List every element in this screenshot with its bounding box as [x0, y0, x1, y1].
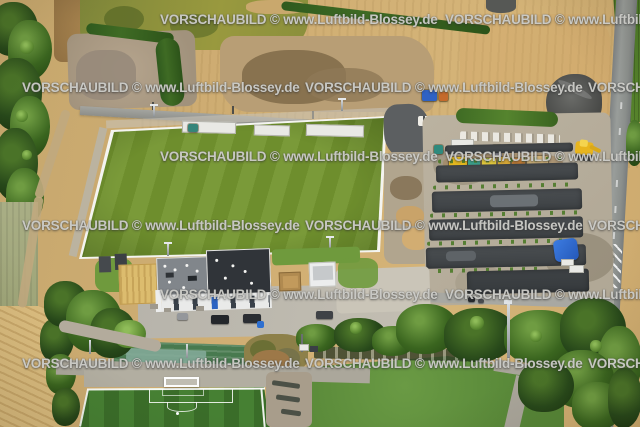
- tree-band-east: [608, 368, 640, 427]
- sand-heap: [396, 206, 424, 226]
- storage-box: [299, 344, 309, 351]
- floodlight-head: [164, 242, 172, 244]
- dirt-patch: [306, 68, 384, 102]
- roof-vent: [182, 286, 185, 289]
- roof-vent: [224, 277, 227, 280]
- aerial-photo: VORSCHAUBILD © www.Luftbild-Blossey.deVO…: [0, 0, 640, 427]
- roof-section-light: [156, 256, 209, 296]
- roof-vent: [163, 265, 166, 268]
- field-edge-trees: [52, 388, 80, 426]
- tree-highlight: [350, 322, 362, 334]
- orange-machine: [439, 92, 448, 101]
- asphalt-row: [436, 162, 578, 182]
- roof-vent: [244, 270, 247, 273]
- clubhouse: [154, 246, 276, 318]
- football-goal: [164, 377, 199, 387]
- shed-roof: [283, 276, 298, 289]
- dirt-pile-top-edge: [486, 0, 516, 13]
- dark-car: [211, 315, 229, 324]
- dirt-heap: [390, 176, 422, 200]
- worn-patch: [446, 251, 476, 262]
- tree-highlight: [530, 330, 542, 342]
- roof-vent: [250, 282, 253, 285]
- shed: [99, 256, 112, 272]
- penalty-spot: [176, 412, 179, 415]
- south-facade: [161, 292, 271, 312]
- roof-vent: [215, 259, 218, 262]
- tree-highlight: [590, 340, 602, 352]
- rooftop-unit: [188, 276, 197, 281]
- container: [306, 124, 364, 138]
- brown-shed: [279, 272, 302, 292]
- floodlight-mast-south: [507, 302, 510, 358]
- floodlight-head: [338, 98, 346, 100]
- pad-dark-patch: [76, 50, 136, 100]
- blue-door: [212, 297, 218, 309]
- material-bits: [164, 308, 171, 312]
- silver-car: [177, 313, 188, 320]
- shed-roof: [313, 266, 333, 281]
- teal-container: [188, 124, 198, 132]
- roof-vent: [174, 268, 177, 271]
- bare-dirt-area: [220, 36, 434, 112]
- penalty-arc: [167, 402, 197, 412]
- worn-patch: [490, 194, 538, 207]
- white-utility-shed: [309, 262, 337, 288]
- blue-machine: [422, 90, 437, 101]
- storage-box-dark: [310, 346, 318, 352]
- material-bits: [150, 304, 158, 309]
- dark-van: [316, 311, 333, 319]
- floodlight-head: [504, 300, 512, 304]
- roof-vent: [196, 270, 199, 273]
- material-stack: [569, 265, 584, 273]
- asphalt-row: [429, 216, 583, 240]
- floodlight-head: [150, 104, 158, 106]
- roof-vent: [231, 264, 234, 267]
- car-on-access-road: [468, 297, 475, 302]
- material-bits: [196, 306, 204, 311]
- blue-wheelie-bin: [257, 321, 264, 328]
- roof-vent: [185, 264, 188, 267]
- container: [254, 125, 290, 137]
- lawn-patch: [338, 258, 378, 288]
- floodlight-mast: [153, 105, 155, 117]
- asphalt-row: [432, 188, 582, 212]
- utility-pole: [232, 106, 234, 114]
- rooftop-unit: [166, 272, 174, 277]
- roof-section-dark: [206, 248, 272, 298]
- goal-area: [162, 389, 204, 396]
- tree-highlight: [470, 316, 484, 330]
- light-pole: [186, 344, 188, 358]
- tree-highlight: [16, 110, 28, 122]
- tree-east-of-road: [626, 120, 640, 166]
- roof-vent: [168, 281, 171, 284]
- floodlight-head: [326, 236, 334, 238]
- teal-box: [434, 145, 443, 154]
- floodlight-mast: [341, 99, 343, 111]
- excavator: [570, 137, 603, 166]
- tree-highlight: [20, 40, 34, 54]
- light-pole: [89, 340, 91, 354]
- car-on-access-road: [478, 299, 484, 303]
- excavator-cab: [579, 139, 588, 147]
